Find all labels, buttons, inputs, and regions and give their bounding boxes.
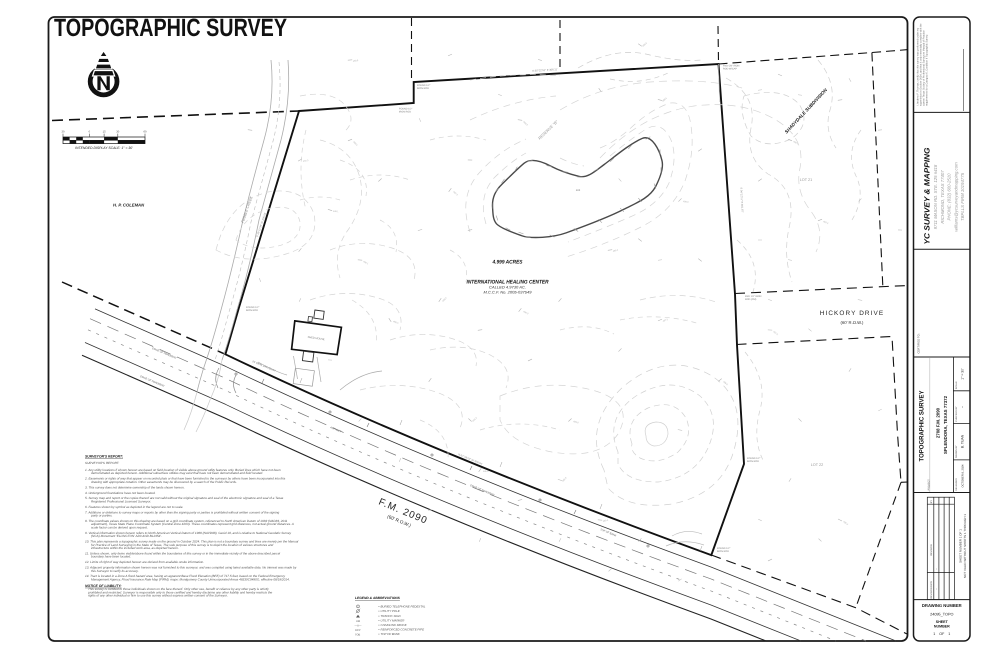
svg-text:YC SURVEY & MAPPING: YC SURVEY & MAPPING (923, 147, 932, 244)
svg-text:CHECKED BY: CHECKED BY (955, 406, 958, 422)
svg-text:REVISION DATE: REVISION DATE (930, 580, 933, 598)
svg-text:4.999 ACRES: 4.999 ACRES (492, 260, 523, 266)
svg-text:INTERNATIONAL HEALING CENTER: INTERNATIONAL HEALING CENTER (467, 280, 549, 286)
svg-text:demonstrated as depicted hereo: demonstrated as depicted hereon. Additio… (91, 471, 263, 475)
svg-text:CERTIFIED TO:: CERTIFIED TO: (917, 333, 921, 353)
svg-text:PHONE: (832) 600-2510: PHONE: (832) 600-2510 (947, 173, 952, 221)
svg-text:1" = 30': 1" = 30' (961, 368, 965, 380)
svg-text:3. This survey does not dete: 3. This survey does not determine owners… (85, 485, 185, 489)
svg-text:LOT 22: LOT 22 (811, 463, 824, 467)
svg-text:4. Underground foundations h: 4. Underground foundations have not been… (85, 491, 156, 495)
svg-text:--: -- (936, 568, 939, 570)
svg-text:IRON ROD: IRON ROD (417, 87, 429, 90)
svg-text:party or parties.: party or parties. (90, 514, 113, 518)
svg-text:TOPOGRAPHIC SURVEY: TOPOGRAPHIC SURVEY (919, 390, 926, 462)
svg-text:—X—: —X— (355, 625, 362, 628)
svg-text:UM: UM (356, 620, 360, 623)
svg-text:DRAWING NUMBER: DRAWING NUMBER (922, 603, 962, 608)
svg-text:(NGS) Monument 'ELLINGTON' AD3: (NGS) Monument 'ELLINGTON' AD3 AND BL235… (91, 534, 162, 538)
svg-text:12. Limits of right of way d: 12. Limits of right of way depicted here… (85, 560, 204, 564)
svg-text:9711 MASON RD. STE. 125 #418: 9711 MASON RD. STE. 125 #418 (933, 164, 938, 229)
svg-text:REVISION: REVISION (930, 544, 933, 555)
svg-text:requirements for a Category 6,: requirements for a Category 6, Condition… (926, 34, 929, 106)
svg-text:SPLENDORA, TEXAS 77372: SPLENDORA, TEXAS 77372 (943, 395, 948, 454)
svg-text:infrastructure within the incl: infrastructure within the included work … (91, 546, 179, 550)
svg-text:M.C.C.F. No. 2005-037549: M.C.C.F. No. 2005-037549 (484, 290, 532, 294)
svg-text:486.8: 486.8 (483, 470, 489, 473)
svg-text:IRON ROD: IRON ROD (246, 309, 258, 312)
svg-text:this Surveyor to verify its ac: this Surveyor to verify its accuracy. (91, 569, 139, 573)
svg-text:SHEET NUMBER 1 OF 1: SHEET NUMBER 1 OF 1 (958, 529, 962, 563)
svg-text:B. TUAN: B. TUAN (961, 434, 965, 448)
svg-text:1 OF 1: 1 OF 1 (933, 632, 950, 636)
svg-text:NOT VALID WITHOUT SHEETS 1 THR: NOT VALID WITHOUT SHEETS 1 THROUGH 1 (963, 514, 967, 578)
svg-text:RELEASED: RELEASED (955, 478, 958, 491)
svg-text:NUMBER: NUMBER (934, 624, 950, 628)
svg-text:6. Features shown by symbol: 6. Features shown by symbol as depicted … (85, 505, 184, 509)
svg-text:15: 15 (103, 131, 106, 134)
svg-text:= UTILITY POLE: = UTILITY POLE (378, 609, 400, 613)
svg-text:williams@ycsurveyandmapping.co: williams@ycsurveyandmapping.com (953, 162, 958, 232)
svg-text:RICHMOND, TEXAS 77407: RICHMOND, TEXAS 77407 (940, 170, 945, 224)
svg-text:ROD (CM): ROD (CM) (745, 298, 756, 301)
svg-text:scale factor can be derived up: scale factor can be derived upon request… (91, 525, 148, 529)
svg-text:--: -- (961, 406, 965, 408)
svg-text:IRON ROD: IRON ROD (717, 550, 729, 553)
svg-text:30: 30 (116, 131, 119, 134)
svg-text:488: 488 (576, 189, 581, 192)
svg-text:IRON ROD: IRON ROD (399, 110, 411, 113)
svg-text:PROJECT: PROJECT (928, 479, 931, 491)
svg-text:TBPLLS FIRM 10194775: TBPLLS FIRM 10194775 (960, 172, 965, 221)
svg-text:ROD W/CAP: ROD W/CAP (723, 67, 737, 70)
svg-text:--: -- (936, 588, 939, 590)
svg-text:Registered Professional Licens: Registered Professional Licensed Surveyo… (91, 499, 151, 503)
svg-text:TOB: TOB (355, 634, 361, 637)
svg-text:489.1: 489.1 (333, 210, 339, 213)
svg-text:IRON ROD: IRON ROD (747, 460, 759, 463)
svg-text:DRAWN BY: DRAWN BY (955, 445, 958, 458)
svg-text:BY: BY (930, 500, 933, 504)
svg-text:INTENDED DISPLAY SCALE: 1" = 3: INTENDED DISPLAY SCALE: 1" = 30' (75, 146, 133, 150)
svg-text:= TRAFFIC SIGN: = TRAFFIC SIGN (378, 614, 401, 618)
svg-text:rights of any other individual: rights of any other individual or firm t… (88, 593, 228, 597)
svg-text:SURVEYOR'S REPORT:: SURVEYOR'S REPORT: (85, 461, 120, 465)
svg-text:30: 30 (62, 131, 65, 134)
svg-text:RCP: RCP (355, 629, 361, 632)
svg-text:24095_TOPO: 24095_TOPO (930, 613, 953, 617)
svg-text:= REINFORCED CONCRETE PIPE: = REINFORCED CONCRETE PIPE (378, 627, 424, 631)
svg-text:= UTILITY MARKER: = UTILITY MARKER (378, 618, 404, 622)
svg-text:OCTOBER 8, 2024: OCTOBER 8, 2024 (962, 464, 965, 487)
svg-text:TOPOGRAPHIC SURVEY: TOPOGRAPHIC SURVEY (54, 14, 287, 42)
svg-text:LOT 21: LOT 21 (800, 178, 813, 182)
svg-text:Management Agency, Flood Insur: Management Agency, Flood Insurance Rate … (91, 577, 290, 581)
svg-text:(60' R.O.W.): (60' R.O.W.) (841, 320, 865, 325)
svg-text:60: 60 (144, 131, 147, 134)
svg-text:HICKORY DRIVE: HICKORY DRIVE (820, 310, 885, 317)
svg-text:boundary have been located.: boundary have been located. (91, 555, 131, 559)
svg-text:LEGEND & ABBREVIATIONS: LEGEND & ABBREVIATIONS (355, 596, 401, 600)
svg-text:H. P. COLEMAN: H. P. COLEMAN (113, 203, 145, 208)
svg-text:7. Additions or deletions to: 7. Additions or deletions to survey maps… (85, 510, 279, 514)
svg-text:2708 F.M. 2090: 2708 F.M. 2090 (936, 407, 941, 438)
svg-text:= BURIED TELEPHONE PEDESTAL: = BURIED TELEPHONE PEDESTAL (378, 604, 426, 608)
svg-text:drawing with appropriate notat: drawing with appropriate notation. Other… (91, 480, 237, 484)
svg-text:= TOP OF BANK: = TOP OF BANK (378, 632, 401, 636)
svg-text:SCALE: SCALE (955, 381, 958, 389)
svg-text:SURVEYOR'S REPORT:: SURVEYOR'S REPORT: (85, 455, 123, 459)
svg-text:CALLED 4.9730 AC.: CALLED 4.9730 AC. (489, 286, 526, 290)
